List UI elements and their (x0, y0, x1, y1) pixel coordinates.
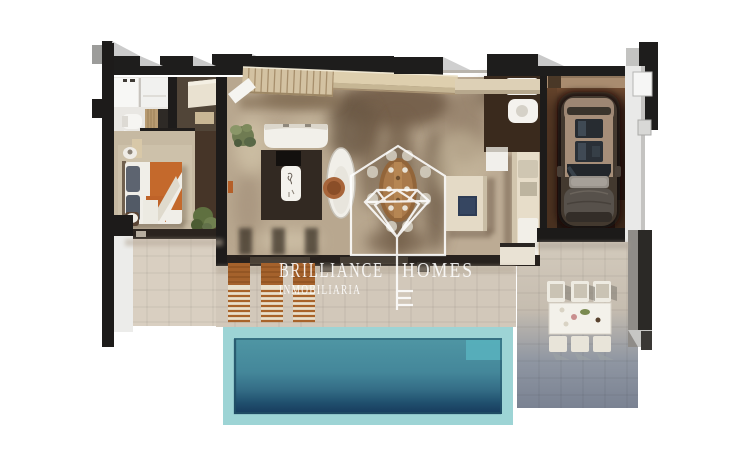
svg-text:HOMES: HOMES (402, 260, 474, 283)
svg-text:BRILLIANCE: BRILLIANCE (279, 258, 384, 281)
svg-text:INMOBILIARIA: INMOBILIARIA (279, 281, 361, 297)
